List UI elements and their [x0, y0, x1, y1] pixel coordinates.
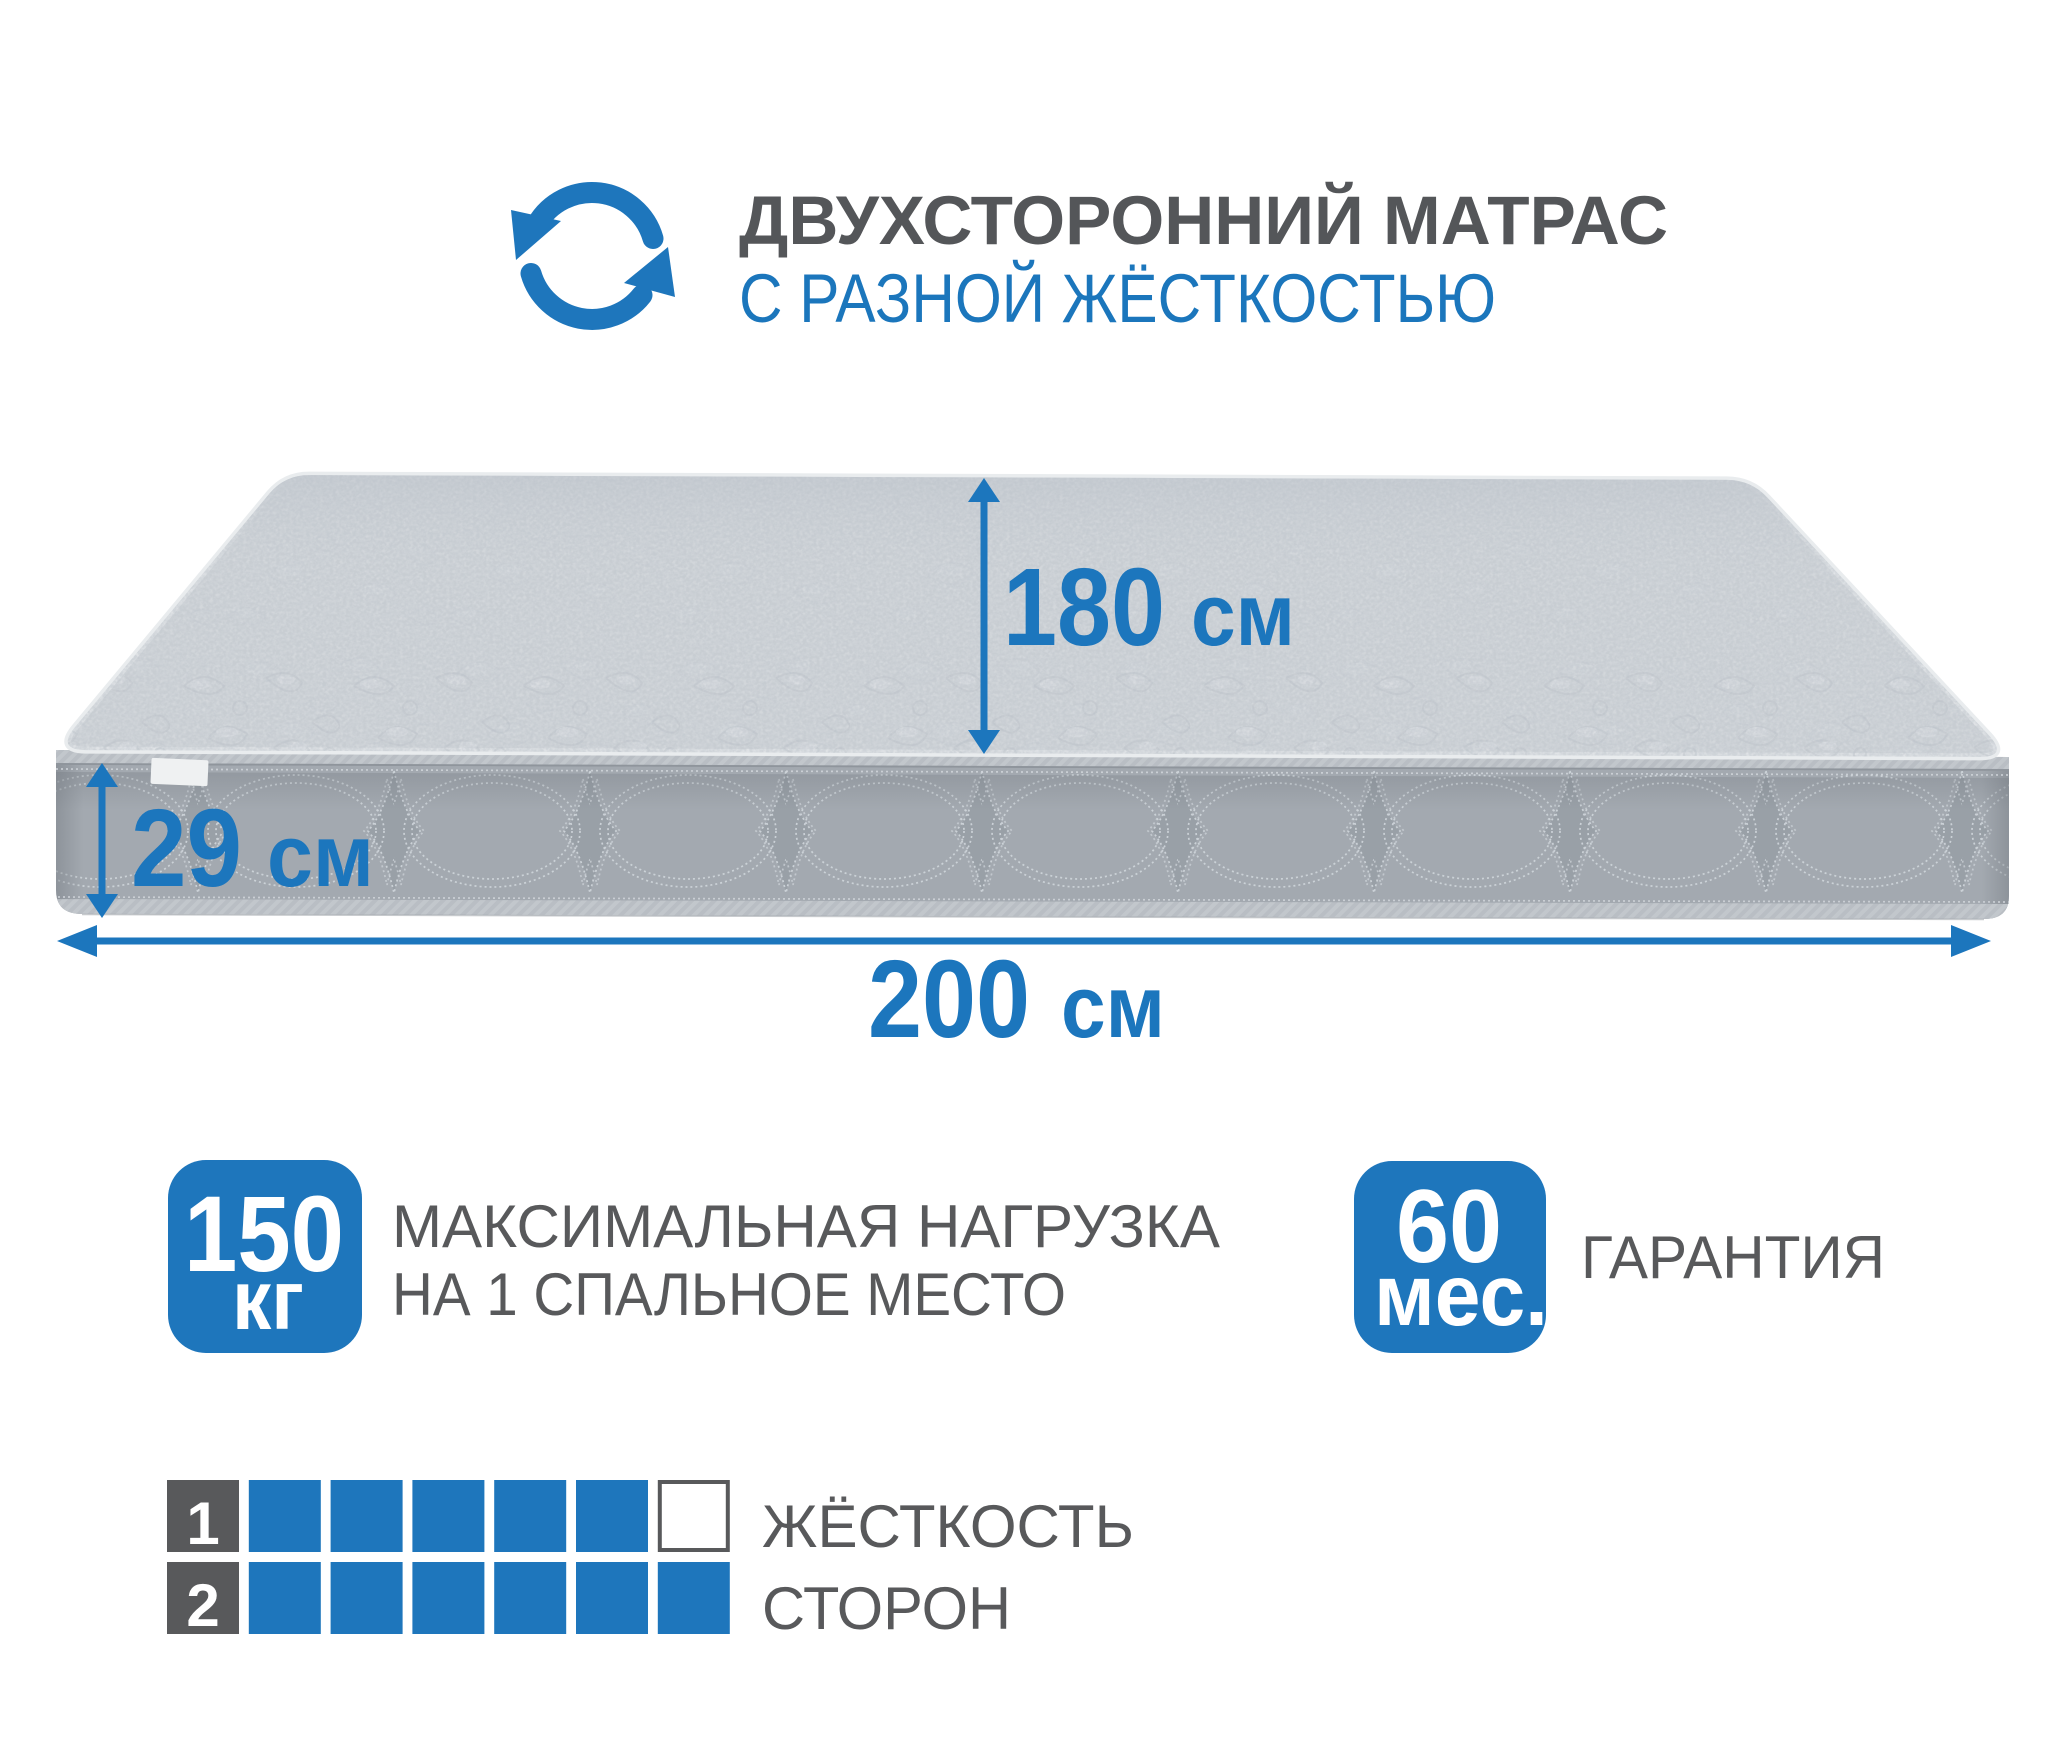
svg-text:200: 200	[868, 938, 1030, 1061]
svg-text:С РАЗНОЙ ЖЁСТКОСТЬЮ: С РАЗНОЙ ЖЁСТКОСТЬЮ	[739, 260, 1496, 337]
svg-text:см: см	[267, 806, 374, 905]
svg-text:ГАРАНТИЯ: ГАРАНТИЯ	[1581, 1224, 1885, 1291]
svg-text:29: 29	[131, 787, 242, 910]
svg-text:мес.: мес.	[1374, 1247, 1548, 1344]
svg-text:см: см	[1061, 957, 1165, 1056]
svg-text:СТОРОН: СТОРОН	[762, 1575, 1011, 1642]
svg-text:МАКСИМАЛЬНАЯ НАГРУЗКА: МАКСИМАЛЬНАЯ НАГРУЗКА	[392, 1193, 1220, 1260]
svg-text:НА 1 СПАЛЬНОЕ МЕСТО: НА 1 СПАЛЬНОЕ МЕСТО	[392, 1261, 1066, 1328]
svg-text:180: 180	[1003, 546, 1165, 669]
svg-text:2: 2	[186, 1572, 219, 1639]
svg-text:см: см	[1191, 565, 1295, 664]
svg-text:кг: кг	[232, 1253, 304, 1347]
svg-text:ДВУХСТОРОННИЙ МАТРАС: ДВУХСТОРОННИЙ МАТРАС	[739, 181, 1668, 259]
svg-text:ЖЁСТКОСТЬ: ЖЁСТКОСТЬ	[762, 1493, 1134, 1560]
svg-text:1: 1	[186, 1490, 219, 1557]
